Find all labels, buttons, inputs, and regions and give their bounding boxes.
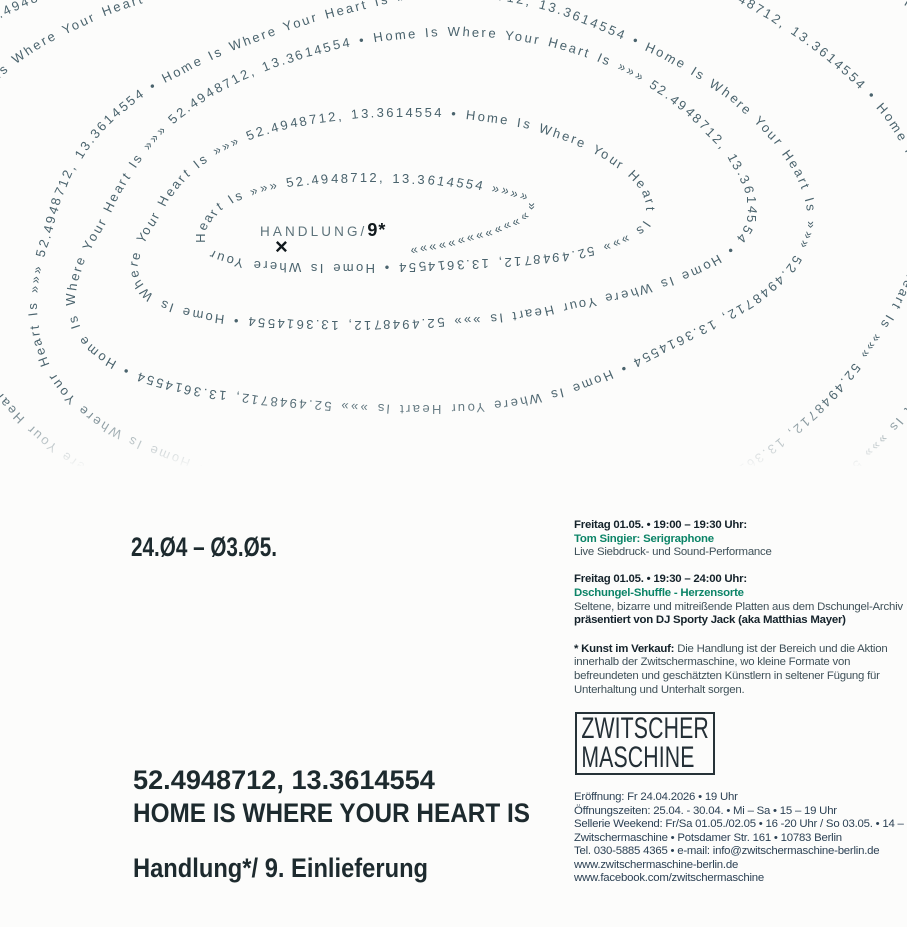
svg-text:×: × bbox=[275, 234, 288, 259]
